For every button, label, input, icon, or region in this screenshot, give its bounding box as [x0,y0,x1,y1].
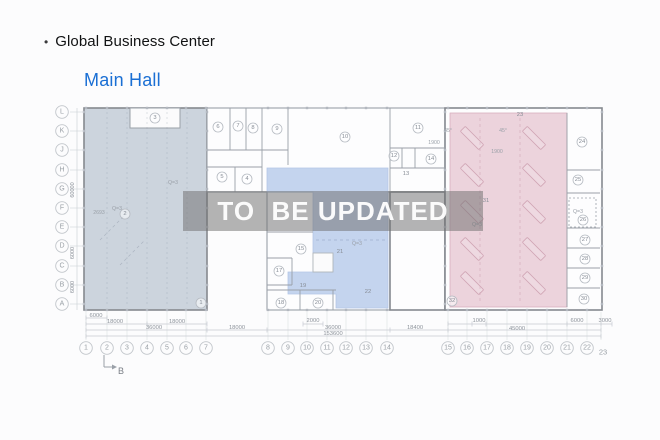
column-tick [601,284,603,286]
axis-col-label: 1 [84,345,88,352]
axis-col-label: 17 [483,345,491,352]
dimension-label: 18000 [169,319,185,325]
dimension-label: 3000 [599,318,612,324]
column-tick [267,107,269,109]
column-tick [444,111,446,113]
column-tick [146,107,148,109]
dimension-label: 18000 [229,325,245,331]
column-tick [206,169,208,171]
annotation-label: 1900 [491,149,503,155]
column-tick [166,107,168,109]
annotation-label: 1900 [428,140,440,146]
column-tick [206,111,208,113]
section-marker-label: B [118,366,124,376]
column-tick [444,265,446,267]
room-number-label: 17 [276,268,282,274]
dimension-label: 60000 [70,182,76,197]
column-tick [601,207,603,209]
room-number-label: 13 [403,171,409,177]
column-tick [206,149,208,151]
column-tick [345,309,347,311]
column-tick [601,149,603,151]
room-number-label: 12 [391,153,397,159]
column-tick [326,309,328,311]
column-tick [287,107,289,109]
axis-col-label: 13 [362,345,370,352]
axis-col-label: 7 [204,345,208,352]
room-number-label: 15 [298,246,304,252]
room-number-label: 10 [342,134,348,140]
column-tick [306,309,308,311]
column-tick [486,309,488,311]
room-number-label: 19 [300,283,306,289]
room-number-label: 32 [449,298,455,304]
axis-col-label: 21 [563,345,571,352]
column-tick [365,309,367,311]
axis-col-label: 18 [503,345,511,352]
column-tick [205,309,207,311]
column-tick [267,309,269,311]
room-number-label: 8 [251,125,254,131]
column-tick [106,107,108,109]
axis-col-label: 12 [342,345,350,352]
section-marker-arrow-icon [112,365,117,370]
axis-col-label: 15 [444,345,452,352]
room-number-label: 11 [415,125,421,131]
axis-row-label: H [59,167,64,174]
room-number-label: 20 [315,300,321,306]
axis-row-label: A [60,301,65,308]
column-tick [444,169,446,171]
column-tick [205,107,207,109]
axis-col-label: 2 [105,345,109,352]
room-number-label: 9 [275,126,278,132]
column-tick [444,303,446,305]
axis-col-label: 8 [266,345,270,352]
room-number-label: 28 [582,256,588,262]
column-tick [206,265,208,267]
dimension-label: 6000 [571,318,584,324]
room-number-label: 26 [580,217,586,223]
axis-col-label: 22 [583,345,591,352]
axis-col-label: 6 [184,345,188,352]
column-tick [466,309,468,311]
dimension-label: 2000 [307,318,320,324]
annotation-label: Q=3 [573,209,583,215]
axis-col-label: 20 [543,345,551,352]
column-tick [85,309,87,311]
dimension-label: 18000 [107,319,123,325]
room-number-label: 30 [581,296,587,302]
column-tick [326,107,328,109]
axis-col-label: 19 [523,345,531,352]
room-number-label: 3 [153,115,156,121]
column-tick [206,130,208,132]
room-number-label: 2 [123,211,126,217]
room-number-label: 23 [517,112,523,118]
axis-row-label: F [60,205,64,212]
dimension-label: 153600 [323,331,342,337]
room-number-label: 24 [579,139,586,145]
column-tick [345,107,347,109]
axis-row-label: J [60,147,64,154]
column-tick [566,309,568,311]
column-tick [506,107,508,109]
room-number-label: 14 [428,156,435,162]
column-tick [466,107,468,109]
axis-col-label: 9 [286,345,290,352]
column-tick [546,107,548,109]
column-tick [85,107,87,109]
annotation-label: 45° [444,128,452,134]
column-tick [447,107,449,109]
column-tick [306,107,308,109]
column-tick [206,245,208,247]
column-tick [601,111,603,113]
watermark-banner: TO BE UPDATED [183,191,483,231]
axis-row-label: D [59,243,64,250]
axis-col-label: 16 [463,345,471,352]
room-number-label: 27 [582,237,588,243]
column-tick [447,309,449,311]
dimension-label: 6000 [90,313,103,319]
axis-row-label: B [60,282,65,289]
column-tick [601,169,603,171]
column-tick [526,309,528,311]
column-tick [486,107,488,109]
page: • Global Business Center Main Hall LKJHG… [0,0,660,440]
dimension-label: 45000 [509,326,525,332]
column-tick [126,309,128,311]
center-notch-room [313,253,333,272]
annotation-label: Q=3 [112,206,122,212]
column-tick [444,284,446,286]
room-number-label: 22 [365,289,371,295]
axis-row-label: C [59,263,64,270]
axis-col-label: 23 [599,348,607,357]
axis-col-label: 5 [165,345,169,352]
axis-row-label: K [60,128,65,135]
column-tick [206,284,208,286]
column-tick [146,309,148,311]
room-number-label: 7 [236,123,239,129]
column-tick [386,107,388,109]
column-tick [526,107,528,109]
axis-row-label: G [59,186,64,193]
room-number-label: 31 [483,198,489,204]
column-tick [206,188,208,190]
axis-row-label: E [60,224,65,231]
dimension-label: 18400 [407,325,423,331]
column-tick [287,309,289,311]
column-tick [601,226,603,228]
annotation-label: Q=3 [168,180,178,186]
column-tick [601,130,603,132]
column-tick [166,309,168,311]
column-tick [566,107,568,109]
room-number-label: 29 [582,275,588,281]
axis-col-label: 3 [125,345,129,352]
annotation-label: Q=3 [352,241,362,247]
room-number-label: 18 [278,300,284,306]
dimension-label: 6000 [70,281,76,293]
column-tick [586,309,588,311]
column-tick [506,309,508,311]
room-number-label: 5 [220,174,223,180]
column-tick [601,265,603,267]
column-tick [586,107,588,109]
column-tick [444,188,446,190]
column-tick [106,309,108,311]
axis-col-label: 4 [145,345,149,352]
column-tick [185,309,187,311]
column-tick [546,309,548,311]
annotation-label: 2693 [93,210,105,216]
room-number-label: 21 [337,249,343,255]
axis-col-label: 14 [383,345,391,352]
axis-col-label: 10 [303,345,311,352]
dimension-label: 1000 [473,318,486,324]
axis-row-label: L [60,109,64,116]
column-tick [601,188,603,190]
column-tick [601,245,603,247]
column-tick [601,303,603,305]
room-number-label: 25 [575,177,581,183]
column-tick [444,245,446,247]
annotation-label: 45° [499,128,507,134]
column-tick [444,149,446,151]
axis-col-label: 11 [323,345,330,352]
column-tick [386,309,388,311]
room-number-label: 6 [216,124,219,130]
dimension-label: 6000 [70,247,76,259]
column-tick [126,107,128,109]
room-number-label: 1 [199,300,202,306]
column-tick [365,107,367,109]
dimension-label: 36000 [146,325,162,331]
column-tick [185,107,187,109]
